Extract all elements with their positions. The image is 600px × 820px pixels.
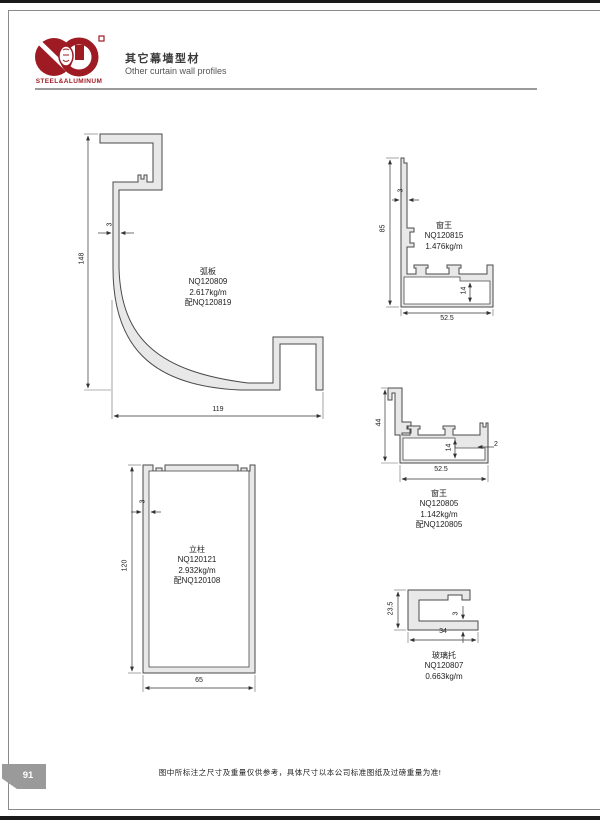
profile-code: NQ120121 <box>157 555 237 565</box>
dim-label: 14 <box>461 276 468 306</box>
dim-label: 120 <box>122 546 129 586</box>
dim-label: 14 <box>446 433 453 463</box>
dim-label: 23.5 <box>388 589 395 629</box>
dim-label: 34 <box>428 628 458 635</box>
dim-label: 3 <box>398 176 405 206</box>
profile-weight: 2.932kg/m <box>157 566 237 576</box>
profile-match: 配NQ120819 <box>168 298 248 308</box>
arc-panel-label: 弧板 NQ120809 2.617kg/m 配NQ120819 <box>168 267 248 309</box>
dim-label: 85 <box>380 214 387 244</box>
dim-label: 119 <box>203 406 233 413</box>
profile-name: 窗王 <box>404 221 484 231</box>
dim-label: 3 <box>453 599 460 629</box>
profile-code: NQ120809 <box>168 277 248 287</box>
profile-match: 配NQ120108 <box>157 576 237 586</box>
profile-weight: 1.142kg/m <box>399 510 479 520</box>
dim-label: 148 <box>79 239 86 279</box>
dim-label: 52.5 <box>432 315 462 322</box>
dim-label: 52.5 <box>426 466 456 473</box>
dim-label: 44 <box>376 408 383 438</box>
glass-support-drawing <box>394 590 478 643</box>
glass-support-label: 玻璃托 NQ120807 0.663kg/m <box>404 651 484 682</box>
dim-label: 3 <box>107 210 114 240</box>
catalog-page: STEEL&ALUMINUM 其它幕墙型材 Other curtain wall… <box>0 0 600 820</box>
mullion-label: 立柱 NQ120121 2.932kg/m 配NQ120108 <box>157 545 237 587</box>
profile-name: 窗王 <box>399 489 479 499</box>
dim-label: 2 <box>481 441 511 448</box>
profile-code: NQ120807 <box>404 661 484 671</box>
profile-code: NQ120815 <box>404 231 484 241</box>
profile-name: 立柱 <box>157 545 237 555</box>
window-top-label: 窗王 NQ120815 1.476kg/m <box>404 221 484 252</box>
profile-match: 配NQ120805 <box>399 520 479 530</box>
footer-disclaimer: 图中所标注之尺寸及重量仅供参考，具体尺寸以本公司标准图纸及过磅重量为准! <box>0 767 600 778</box>
profile-code: NQ120805 <box>399 499 479 509</box>
window-mid-label: 窗王 NQ120805 1.142kg/m 配NQ120805 <box>399 489 479 531</box>
dim-label: 3 <box>140 487 147 517</box>
dim-label: 65 <box>184 677 214 684</box>
profile-name: 弧板 <box>168 267 248 277</box>
profile-weight: 1.476kg/m <box>404 242 484 252</box>
profile-drawings <box>0 0 600 820</box>
profile-weight: 0.663kg/m <box>404 672 484 682</box>
profile-name: 玻璃托 <box>404 651 484 661</box>
profile-weight: 2.617kg/m <box>168 288 248 298</box>
